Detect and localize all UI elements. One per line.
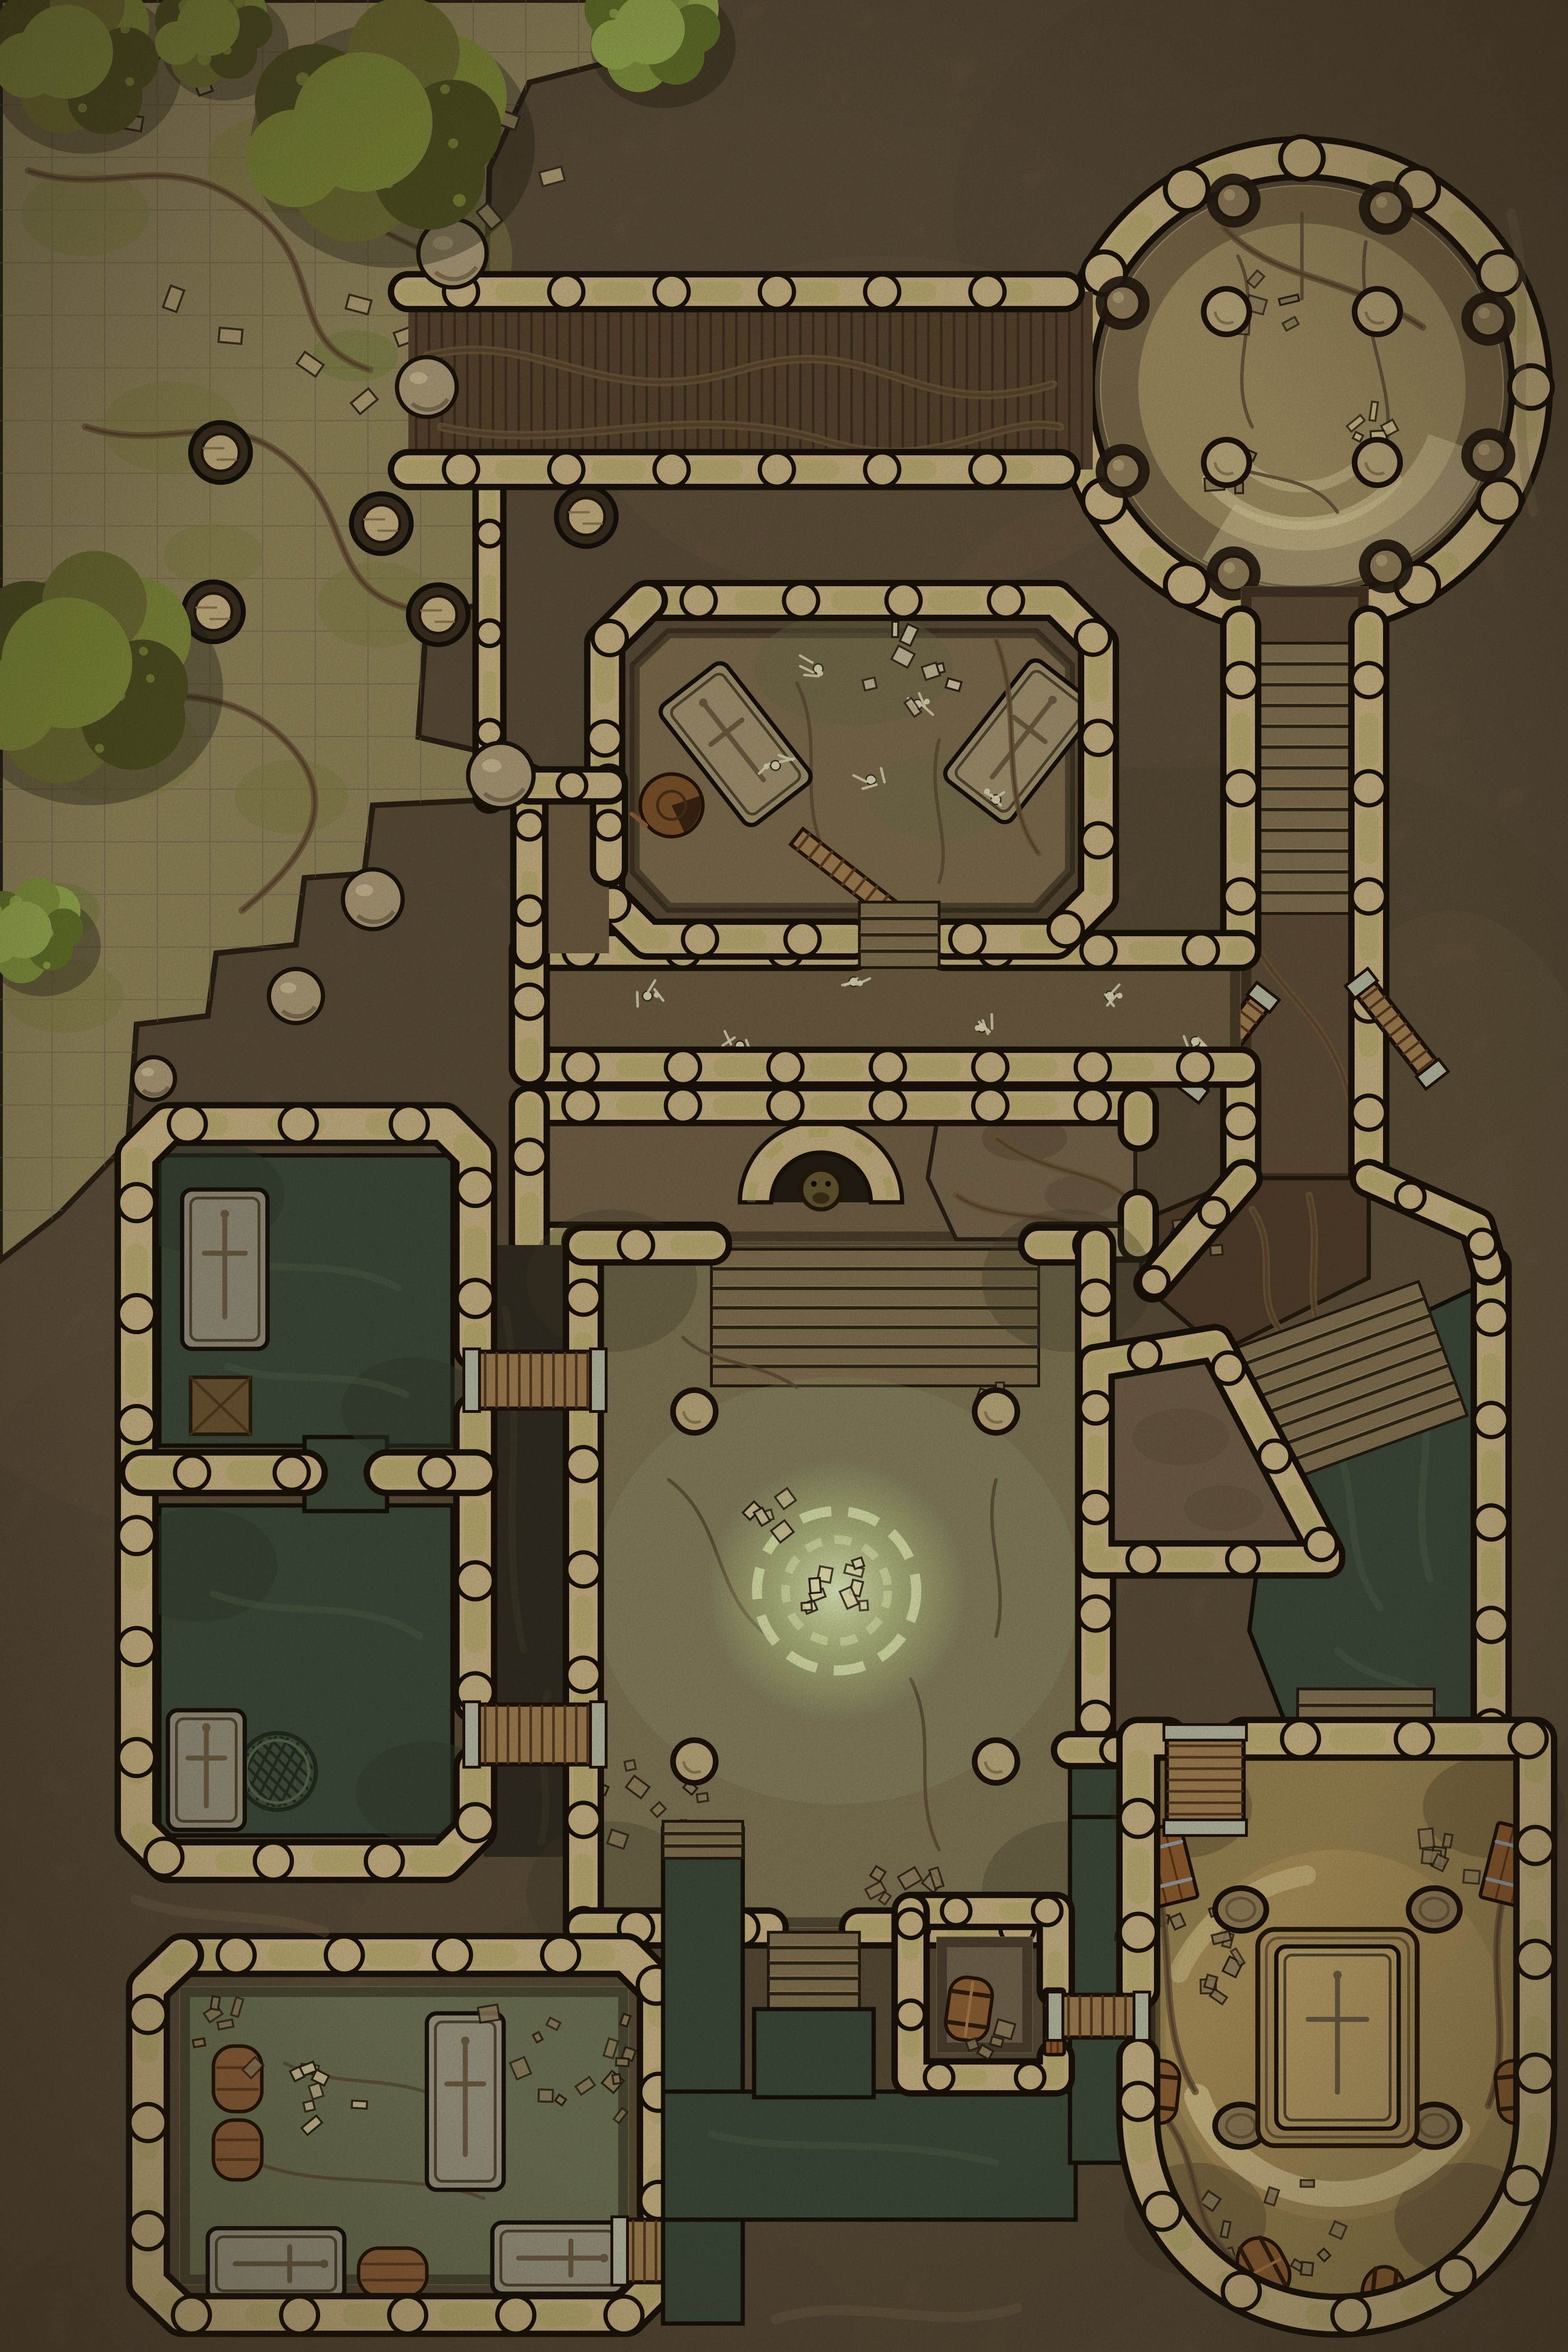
edge-vignette xyxy=(0,0,1568,2352)
dungeon-battlemap xyxy=(0,0,1568,2352)
map-canvas xyxy=(0,0,1568,2352)
